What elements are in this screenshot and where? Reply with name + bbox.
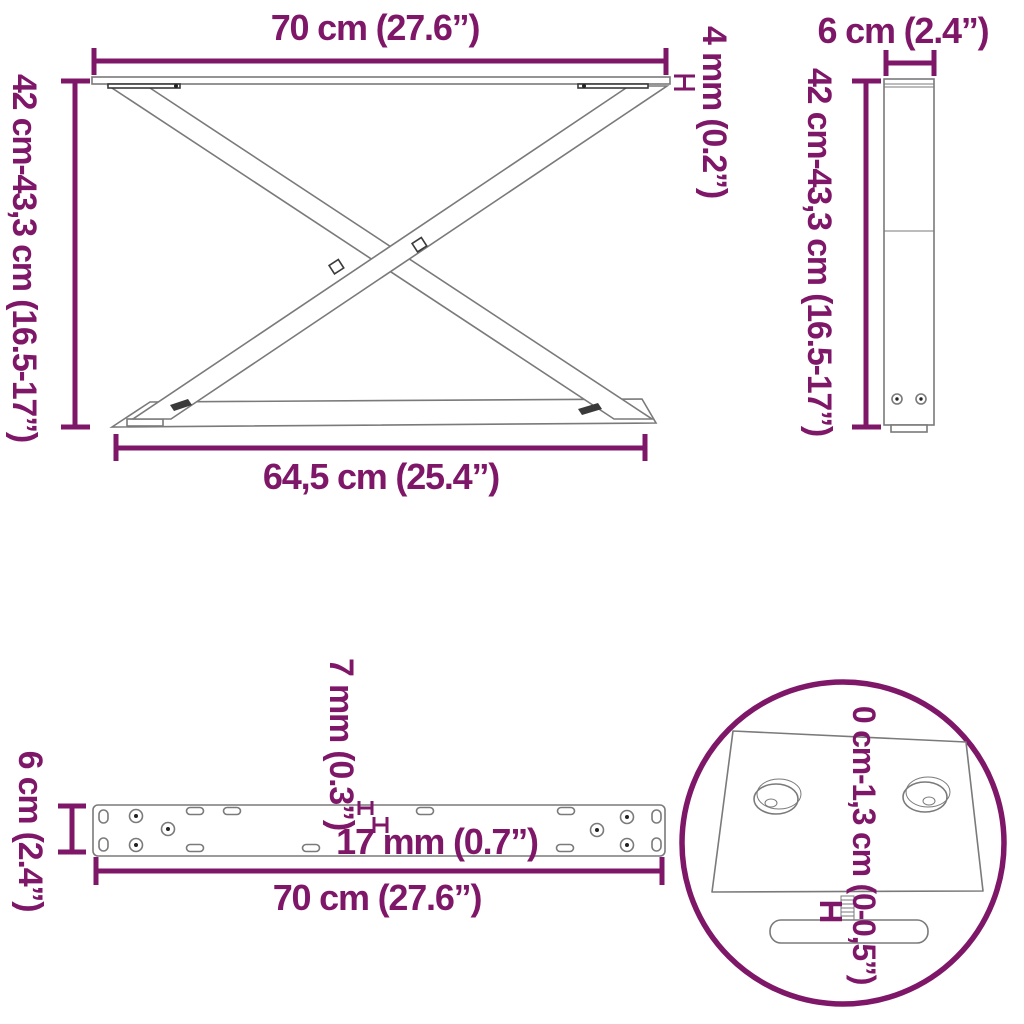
top-bracket-left [108,84,180,88]
side-leg-body [884,79,934,425]
front-plate-thickness-label: 4 mm (0.2”) [697,26,731,198]
front-bottom-width-label: 64,5 cm (25.4”) [263,459,499,495]
side-screw-right-center [919,397,922,400]
plate-depth-label: 6 cm (2.4”) [13,751,47,912]
foot-detail-view [682,682,1004,1004]
bracket-screw-left [174,84,178,88]
dimension-diagram: 70 cm (27.6”) 42 cm-43,3 cm (16.5-17”) 6… [0,0,1024,1024]
plate-hole-center [134,814,138,818]
side-view [884,79,934,432]
front-height-label: 42 cm-43,3 cm (16.5-17”) [7,74,41,442]
bracket-screw-right [582,84,586,88]
plate-hole-center [134,843,138,847]
top-plate [92,77,670,84]
foot-adjust-range-label: 0 cm-1,3 cm (0-0,5”) [848,706,880,984]
side-screw-left-center [895,397,898,400]
plate-hole-center [625,815,629,819]
plate-hole-center [595,828,599,832]
plate-length-label: 70 cm (27.6”) [273,880,482,916]
front-top-width-label: 70 cm (27.6”) [271,10,480,46]
plate-hole-length-label: 17 mm (0.7”) [336,824,538,860]
front-view [92,77,670,427]
top-bracket-right [578,84,648,88]
thickness-marker [674,76,695,89]
plate-hole-center [625,843,629,847]
plate-hole-center [166,827,170,831]
side-foot [891,425,927,432]
bottom-plate-foot-pad [127,419,163,426]
side-height-label: 42 cm-43,3 cm (16.5-17”) [802,68,836,436]
plate-hole-width-label: 7 mm (0.3”) [324,658,358,830]
cross-clip-lower [329,260,344,274]
side-depth-label: 6 cm (2.4”) [818,13,989,49]
